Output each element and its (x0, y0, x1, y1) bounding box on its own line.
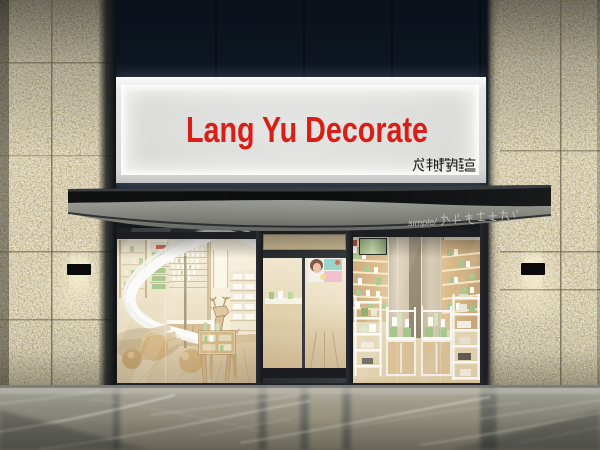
svg-text:simple/: simple/ (408, 217, 438, 228)
